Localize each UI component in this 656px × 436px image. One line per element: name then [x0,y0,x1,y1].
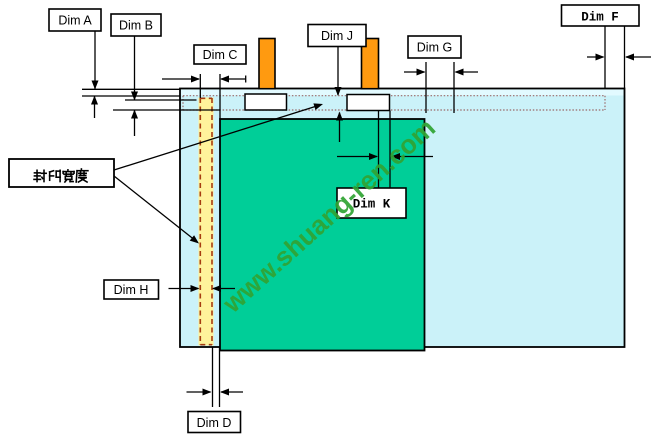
svg-text:Dim A: Dim A [58,14,92,28]
svg-text:Dim B: Dim B [119,19,153,33]
svg-text:Dim G: Dim G [417,41,452,55]
svg-text:Dim J: Dim J [321,29,353,43]
svg-text:Dim D: Dim D [197,416,232,430]
svg-text:Dim H: Dim H [114,283,149,297]
svg-text:Dim C: Dim C [203,48,238,62]
svg-text:Dim F: Dim F [581,11,619,25]
